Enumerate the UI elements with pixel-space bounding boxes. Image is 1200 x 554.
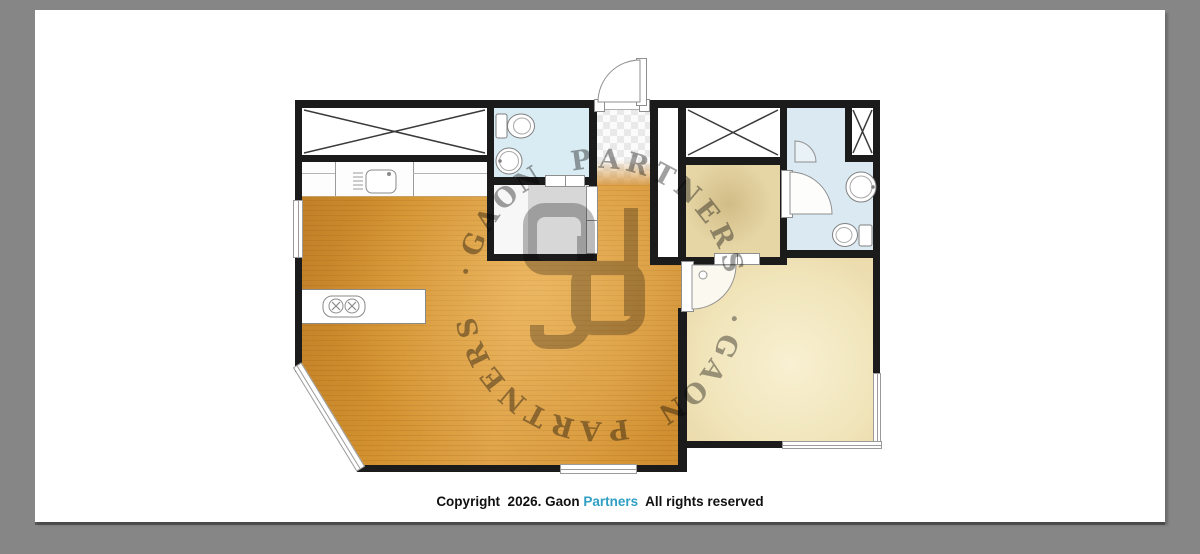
room-utility-right [528, 185, 589, 254]
counter-divider [413, 162, 414, 196]
room-dressing [686, 165, 780, 257]
door-post [594, 99, 605, 112]
wall [678, 157, 787, 165]
duct-shaft [658, 108, 678, 257]
wall [295, 155, 494, 162]
wall [678, 108, 686, 265]
copyright-part: Copyright 2026. Gaon [436, 494, 583, 509]
bathroom-door-leaf [781, 170, 793, 218]
wall [780, 250, 880, 258]
window [293, 200, 303, 258]
room-bedroom [687, 258, 873, 441]
wall [845, 108, 852, 155]
room-utility-left [494, 185, 528, 254]
wall [357, 465, 562, 472]
window [873, 373, 881, 447]
room-storage-closet [302, 108, 487, 155]
entry-door-leaf [636, 58, 647, 106]
counter-depth-line [413, 173, 487, 174]
wall [295, 100, 598, 108]
entry-tile-floor [596, 108, 650, 185]
wall [678, 308, 687, 472]
wall [873, 108, 880, 375]
room-bathroom-right-lower [787, 157, 873, 250]
page: GAON PARTNERS ·GAON PARTNERS · Copyright… [0, 0, 1200, 554]
copyright-part: Partners [583, 494, 638, 509]
wall [295, 256, 302, 368]
window [560, 464, 637, 474]
sliding-door [545, 175, 585, 187]
wall [633, 465, 687, 472]
wall [687, 441, 784, 448]
room-bathroom-left [494, 108, 589, 177]
kitchen-island-counter [302, 289, 426, 324]
counter-depth-line [302, 173, 335, 174]
bedroom-door-leaf [681, 261, 694, 312]
counter-divider [335, 162, 336, 196]
kitchen-counter-area [302, 162, 487, 197]
window [782, 441, 882, 449]
wall [645, 100, 880, 108]
wall [650, 108, 658, 259]
wall [487, 254, 597, 261]
sliding-door [586, 186, 598, 254]
sliding-door [714, 253, 760, 265]
room-closet-corner [852, 108, 873, 155]
copyright-line: Copyright 2026. Gaon Partners All rights… [35, 494, 1165, 509]
copyright-part: All rights reserved [638, 494, 764, 509]
room-bathroom-right-upper [787, 108, 845, 157]
wall [295, 108, 302, 200]
room-closet-right [686, 108, 780, 157]
